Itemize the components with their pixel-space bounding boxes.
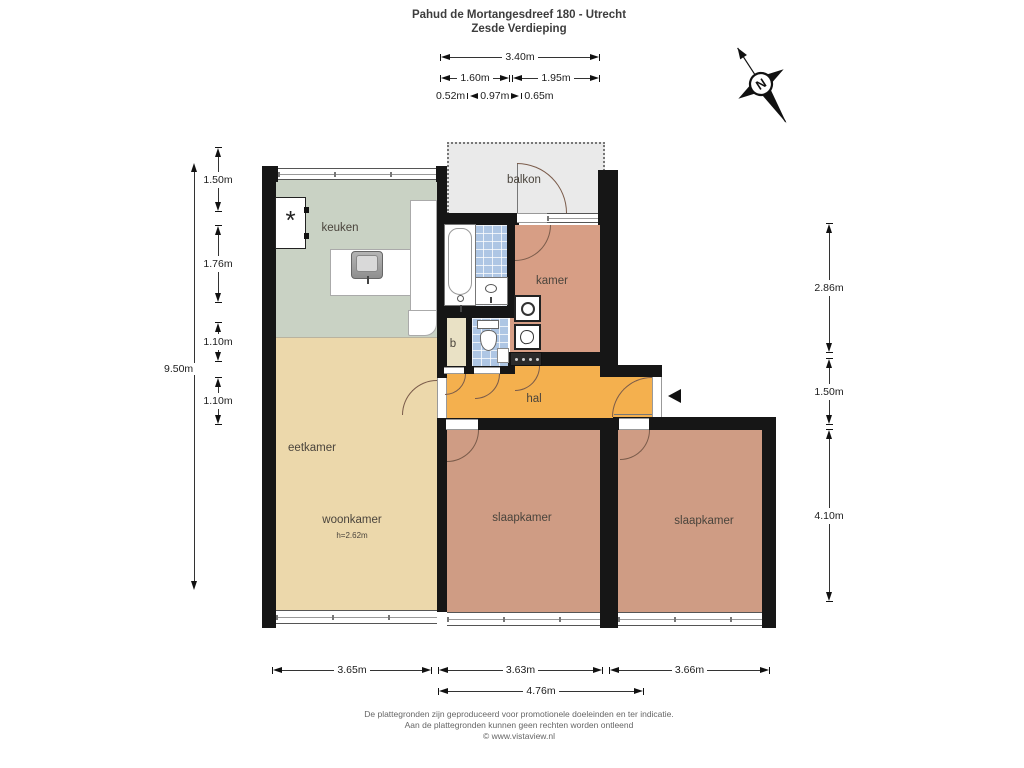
dimension-right-150: 1.50m — [823, 358, 835, 425]
toilet-tank — [477, 320, 499, 329]
washing-machine — [514, 295, 541, 322]
room-label-keuken: keuken — [321, 222, 358, 234]
boiler — [514, 324, 541, 350]
dimension-left-110b: 1.10m — [212, 377, 224, 425]
door-slaapkamer-right — [619, 418, 649, 430]
wall — [507, 225, 515, 306]
dimension-bottom-476: 4.76m — [438, 685, 644, 697]
window-balkon — [547, 213, 598, 223]
wall — [610, 365, 662, 377]
wall — [262, 166, 276, 628]
room-label-kamer: kamer — [536, 275, 568, 287]
dimension-top-160: 1.60m — [440, 72, 510, 84]
compass-icon: N — [720, 38, 802, 132]
kitchen-sink — [351, 251, 383, 279]
footer-line-1: De plattegronden zijn geproduceerd voor … — [269, 709, 769, 720]
window-slaapkamer-mid — [447, 612, 600, 626]
wall — [437, 306, 515, 318]
dimension-top-195: 1.95m — [512, 72, 600, 84]
toilet-fountain — [497, 348, 509, 363]
door-leaf — [614, 414, 652, 415]
footer-copyright: © www.vistaview.nl — [269, 731, 769, 742]
room-woonkamer — [275, 337, 437, 613]
sub-dim-097: 0.97m — [480, 90, 509, 102]
footer-disclaimer: De plattegronden zijn geproduceerd voor … — [269, 709, 769, 742]
door-balkon — [517, 213, 547, 223]
wall — [437, 418, 447, 612]
room-label-berging: b — [450, 338, 456, 350]
sub-dimension-row: 0.52m 0.97m 0.65m — [436, 90, 554, 102]
dimension-left-176: 1.76m — [212, 225, 224, 303]
wall — [600, 418, 618, 628]
room-label-woonkamer: woonkamer — [322, 514, 381, 526]
title-address: Pahud de Mortangesdreef 180 - Utrecht — [269, 8, 769, 22]
door-toilet — [474, 367, 500, 374]
sub-dim-065: 0.65m — [524, 90, 553, 102]
wall — [600, 213, 618, 377]
room-label-hal: hal — [526, 393, 541, 405]
room-label-slaapkamer-right: slaapkamer — [674, 515, 733, 527]
wall — [466, 318, 472, 368]
dimension-left-150: 1.50m — [212, 147, 224, 212]
washbasin — [475, 277, 508, 305]
door-slaapkamer-mid — [446, 419, 478, 430]
door-berging — [444, 367, 464, 374]
room-label-slaapkamer-mid: slaapkamer — [492, 512, 551, 524]
heater-unit — [510, 352, 542, 366]
dimension-bottom-363: 3.63m — [438, 664, 603, 676]
wall — [262, 166, 278, 182]
entrance-arrow-icon — [668, 389, 681, 403]
dimension-left-110a: 1.10m — [212, 322, 224, 362]
room-label-eetkamer: eetkamer — [288, 442, 336, 454]
fridge: * — [275, 197, 306, 249]
dimension-left-950: 9.50m — [188, 163, 200, 590]
freezer-star-icon: * — [276, 200, 305, 240]
room-label-balkon: balkon — [507, 174, 541, 186]
dimension-right-410: 4.10m — [823, 429, 835, 602]
window-slaapkamer-right — [618, 612, 762, 626]
floorplan-canvas: Pahud de Mortangesdreef 180 - Utrecht Ze… — [0, 0, 1024, 768]
footer-line-2: Aan de plattegronden kunnen geen rechten… — [269, 720, 769, 731]
dimension-top-340: 3.40m — [440, 51, 600, 63]
page-title: Pahud de Mortangesdreef 180 - Utrecht Ze… — [269, 8, 769, 36]
kitchen-counter-end — [408, 310, 437, 336]
dimension-bottom-365: 3.65m — [272, 664, 432, 676]
kitchen-counter — [410, 200, 437, 312]
wall — [762, 417, 776, 628]
bathtub — [444, 224, 476, 306]
title-floor: Zesde Verdieping — [269, 22, 769, 36]
window-keuken — [278, 168, 436, 180]
door-entry — [652, 377, 662, 417]
room-label-woonkamer-height: h=2.62m — [336, 531, 367, 540]
dimension-right-286: 2.86m — [823, 223, 835, 353]
sub-dim-052: 0.52m — [436, 90, 465, 102]
window-woonkamer — [276, 610, 437, 624]
dimension-bottom-366: 3.66m — [609, 664, 770, 676]
